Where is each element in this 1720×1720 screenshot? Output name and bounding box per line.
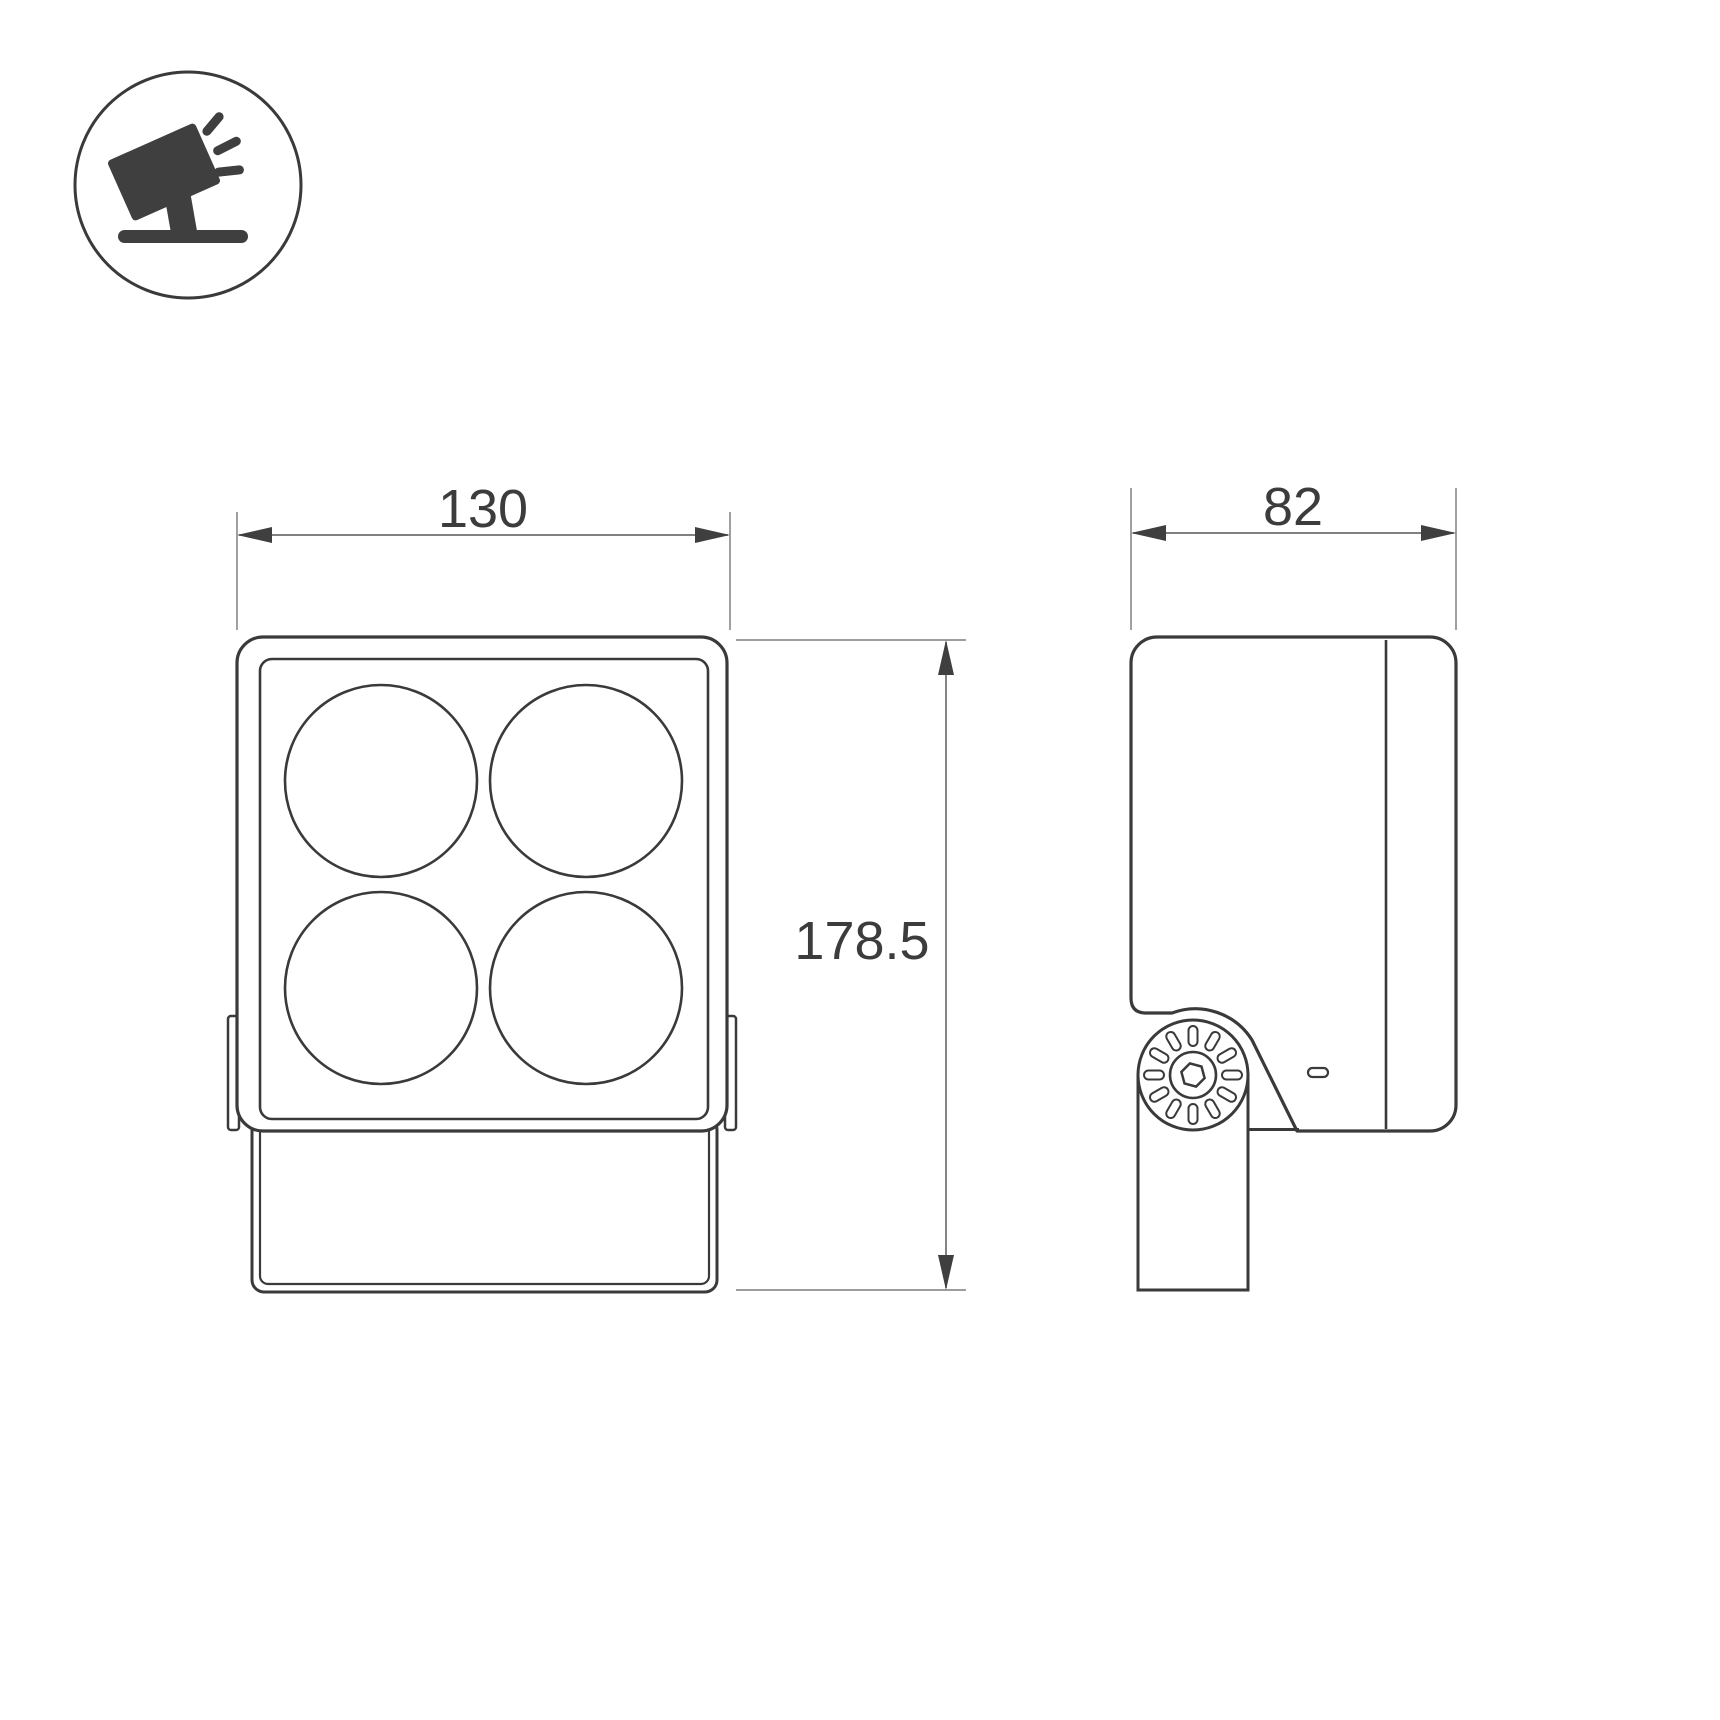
arrowhead-bottom [938,1255,954,1290]
side-knurl-tick [1144,1071,1164,1080]
icon-lamp-head [107,122,222,221]
front-bracket-base [252,1118,717,1292]
side-indicator-slot [1308,1068,1328,1077]
side-knurl-tick [1222,1071,1242,1080]
technical-drawing: 130 82 178.5 [0,0,1720,1720]
arrowhead-right [695,527,730,543]
arrowhead-left [237,527,272,543]
arrowhead-top [938,640,954,675]
drawing-canvas: 130 82 178.5 [0,0,1720,1720]
dimension-height-178-5: 178.5 [736,640,966,1290]
icon-stand-base [118,230,248,243]
side-knurl-tick [1189,1026,1198,1046]
arrowhead-right [1421,525,1456,541]
arrowhead-left [1131,525,1166,541]
dimension-depth-82: 82 [1131,477,1456,630]
dimension-label: 178.5 [794,911,929,971]
dimension-width-130: 130 [237,479,730,630]
icon-light-ray [214,165,245,177]
icon-light-ray [201,110,226,137]
side-knurl-tick [1189,1104,1198,1124]
side-view [1131,637,1456,1290]
dimension-label: 130 [438,479,528,539]
front-view [228,637,736,1292]
icon-light-ray [212,135,243,157]
side-hinge-inner-circle [1170,1052,1216,1098]
tilted-floodlight-icon [75,72,301,298]
dimension-label: 82 [1263,477,1323,537]
